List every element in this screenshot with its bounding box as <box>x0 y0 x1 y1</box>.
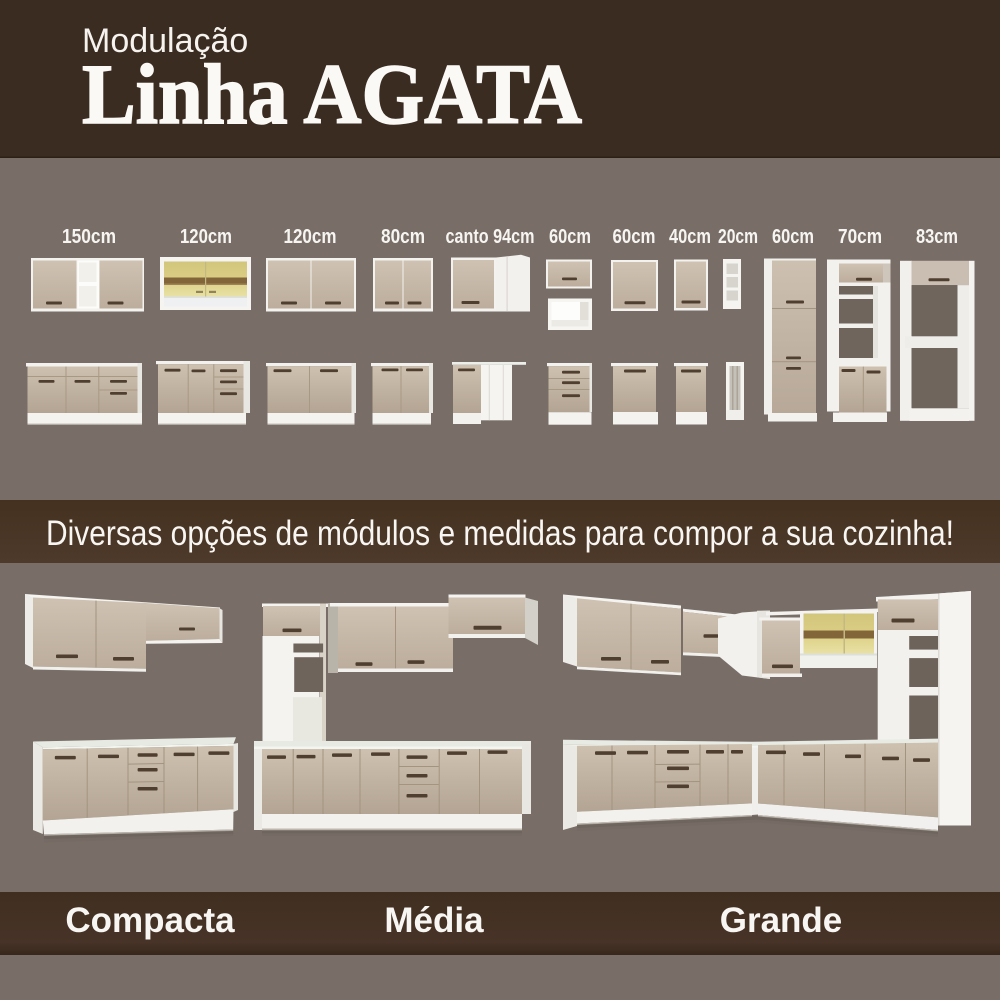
svg-text:70cm: 70cm <box>838 226 882 248</box>
svg-text:Linha AGATA: Linha AGATA <box>82 46 582 142</box>
svg-text:Média: Média <box>384 901 484 940</box>
svg-text:60cm: 60cm <box>613 226 656 248</box>
svg-text:40cm: 40cm <box>669 226 711 248</box>
svg-text:Compacta: Compacta <box>65 901 235 940</box>
svg-text:80cm: 80cm <box>381 226 425 248</box>
svg-text:Diversas opções de módulos e m: Diversas opções de módulos e medidas par… <box>46 514 954 553</box>
svg-text:120cm: 120cm <box>284 226 337 248</box>
svg-text:Grande: Grande <box>720 901 843 940</box>
svg-text:60cm: 60cm <box>549 226 591 248</box>
svg-text:120cm: 120cm <box>180 226 232 248</box>
svg-text:83cm: 83cm <box>916 226 958 248</box>
svg-text:canto 94cm: canto 94cm <box>446 226 535 248</box>
svg-text:60cm: 60cm <box>772 226 814 248</box>
svg-text:150cm: 150cm <box>62 226 116 248</box>
svg-text:20cm: 20cm <box>718 226 758 248</box>
